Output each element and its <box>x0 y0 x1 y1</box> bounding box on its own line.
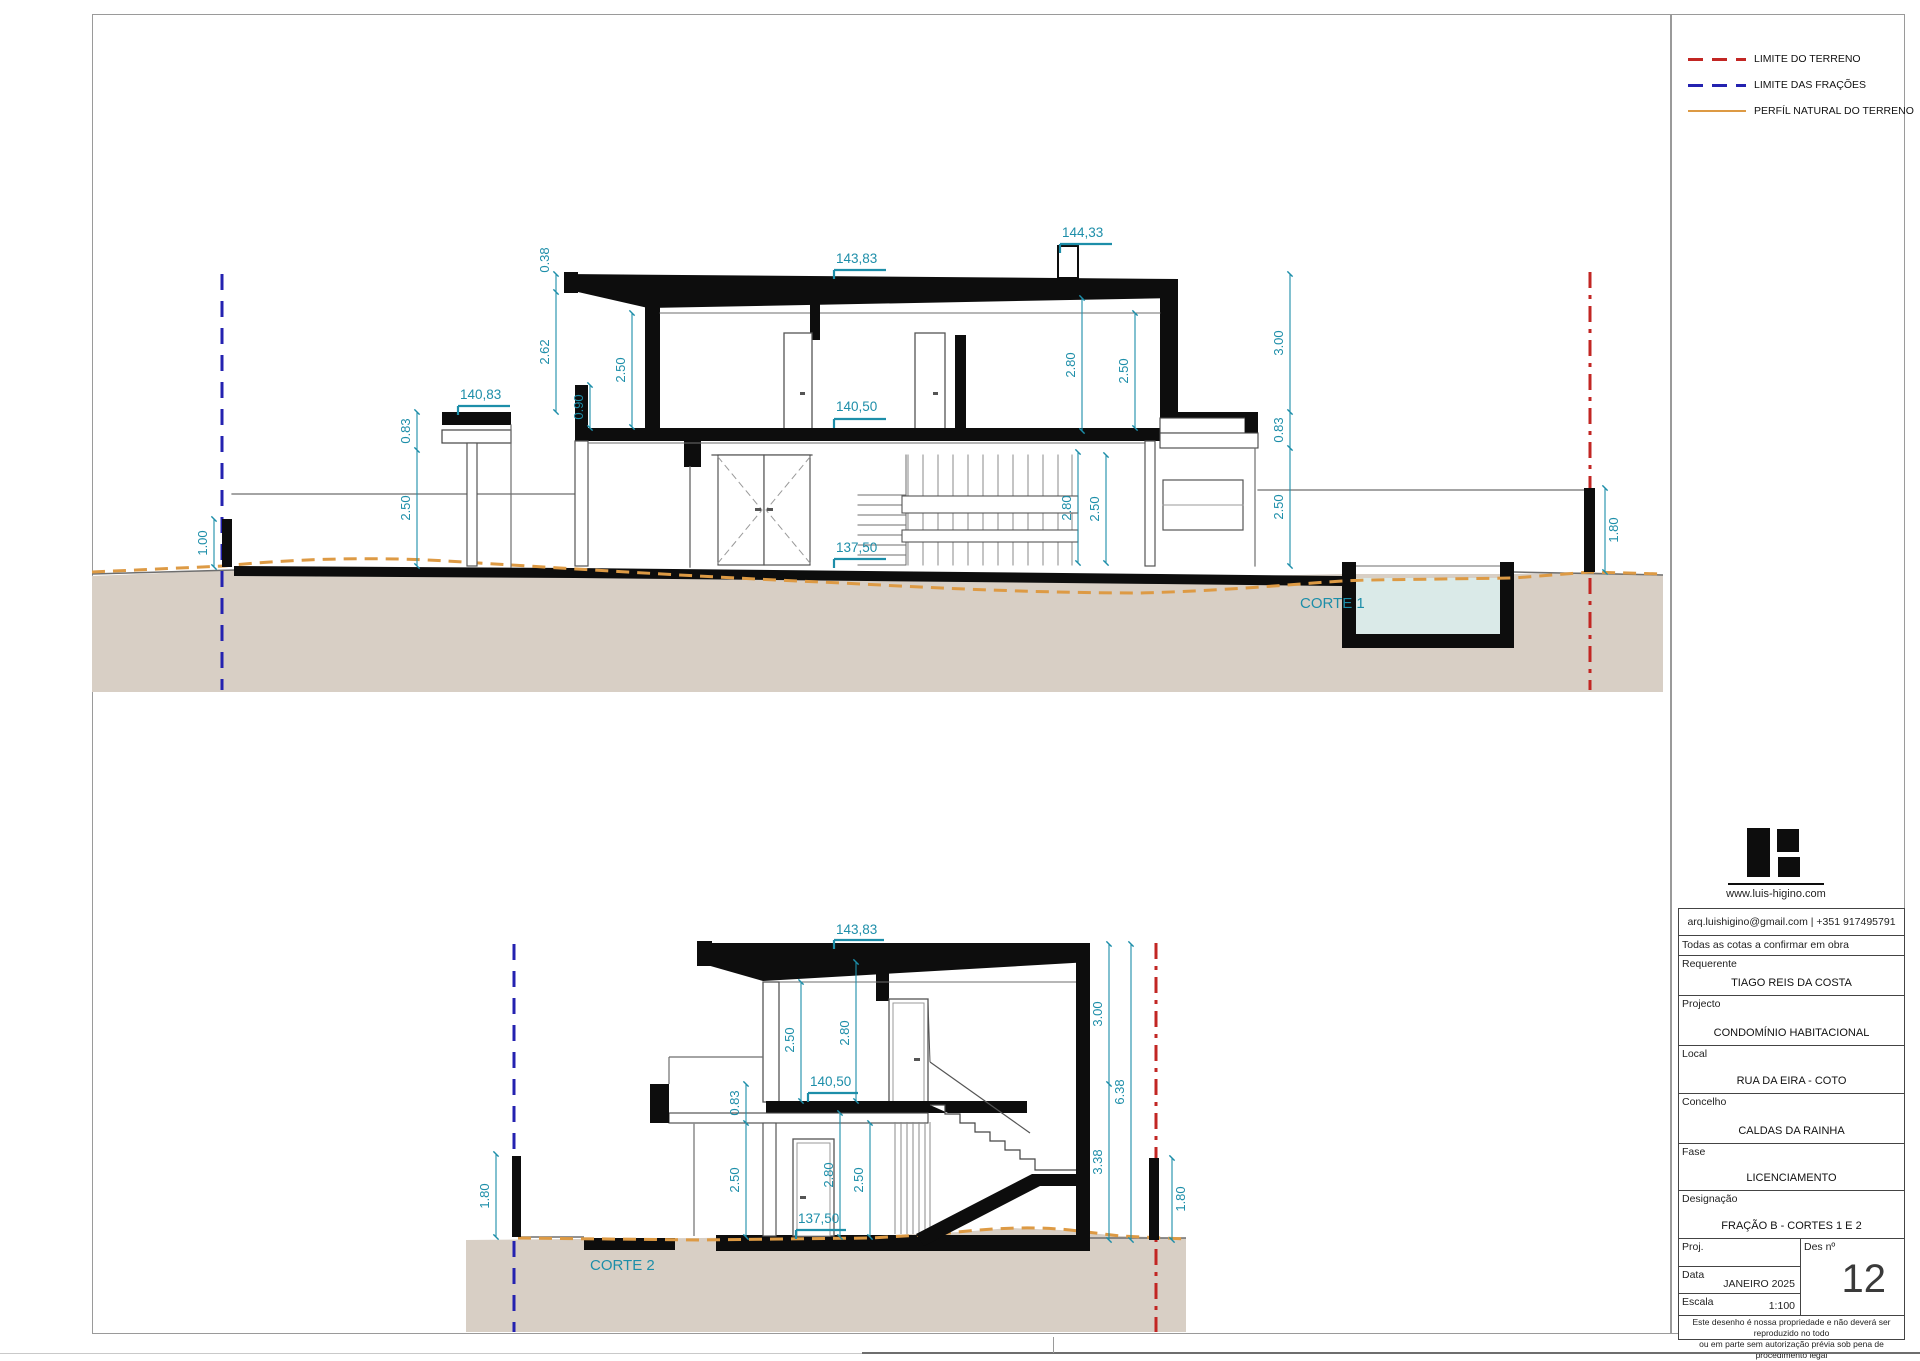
gf-right-wall <box>1145 441 1155 566</box>
level-chimney: 144,33 <box>1062 225 1103 240</box>
field-value: TIAGO REIS DA COSTA <box>1679 977 1904 989</box>
title-block: arq.luishigino@gmail.com | +351 91749579… <box>1678 908 1905 1340</box>
dim-eave: 0.38 <box>537 247 552 272</box>
dim-gf-left: 2.50 <box>727 1167 742 1192</box>
field-label: Designação <box>1682 1193 1737 1205</box>
dim-gf-right: 2.50 <box>1271 494 1286 519</box>
field-value: CALDAS DA RAINHA <box>1679 1125 1904 1137</box>
legend-item-fraction-limit: LIMITE DAS FRAÇÕES <box>1688 72 1903 98</box>
field-projecto: Projecto CONDOMÍNIO HABITACIONAL <box>1679 995 1904 1045</box>
sheet-bottom-tick <box>1053 1337 1054 1353</box>
titleblock-divider <box>1670 14 1672 1334</box>
dim-pergola-h: 2.50 <box>398 495 413 520</box>
right-wall <box>1076 943 1090 1244</box>
proj-label: Proj. <box>1682 1241 1704 1253</box>
cell-proj: Proj. <box>1679 1239 1800 1266</box>
cell-des-numero: Des nº 12 <box>1801 1239 1904 1315</box>
dim-up-int: 2.50 <box>782 1027 797 1052</box>
terrain-profile-line-sample <box>1688 110 1746 113</box>
field-fase: Fase LICENCIAMENTO <box>1679 1143 1904 1190</box>
gf-left-wall <box>763 1123 776 1236</box>
escala-label: Escala <box>1682 1296 1714 1308</box>
dim-left-interior: 2.50 <box>613 357 628 382</box>
field-label: Concelho <box>1682 1096 1726 1108</box>
field-label: Local <box>1682 1048 1707 1060</box>
field-value: RUA DA EIRA - COTO <box>1679 1075 1904 1087</box>
gf-glass-doors <box>712 455 812 565</box>
cell-escala: Escala 1:100 <box>1679 1293 1800 1315</box>
dim-up-h: 2.80 <box>837 1020 852 1045</box>
legend: LIMITE DO TERRENO LIMITE DAS FRAÇÕES PER… <box>1688 46 1903 124</box>
cell-data: Data JANEIRO 2025 <box>1679 1266 1800 1293</box>
right-boundary-wall <box>1149 1158 1159 1240</box>
dim-parapet: 0.90 <box>571 394 586 419</box>
contact-row: arq.luishigino@gmail.com | +351 91749579… <box>1679 909 1904 935</box>
logo-block <box>1747 828 1770 877</box>
floor-slab <box>575 428 1160 441</box>
level-roof: 143,83 <box>836 251 877 266</box>
data-value: JANEIRO 2025 <box>1723 1278 1795 1290</box>
dim-right-total: 3.00 <box>1271 330 1286 355</box>
pergola <box>442 412 511 567</box>
dim-left-total: 2.62 <box>537 339 552 364</box>
pergola-column <box>467 443 477 566</box>
corte1-drawing: 0.38 2.62 2.50 0.90 0.83 2.50 1.00 2.80 … <box>90 180 1670 700</box>
roof-slab <box>566 274 1178 308</box>
upper-left-wall <box>763 982 779 1102</box>
des-label: Des nº <box>1804 1241 1835 1253</box>
footer-line: Este desenho é nossa propriedade e não d… <box>1679 1317 1904 1339</box>
dim-upper-right: 3.00 <box>1090 1001 1105 1026</box>
field-value: FRAÇÃO B - CORTES 1 E 2 <box>1679 1220 1904 1232</box>
gf-left-wall <box>575 441 588 566</box>
drawing-number: 12 <box>1842 1257 1887 1302</box>
fraction-limit-line-sample <box>1688 84 1746 87</box>
upper-door <box>784 333 812 430</box>
left-boundary-wall <box>512 1156 521 1237</box>
field-concelho: Concelho CALDAS DA RAINHA <box>1679 1093 1904 1143</box>
pool-water <box>1356 578 1500 634</box>
field-label: Fase <box>1682 1146 1705 1158</box>
terrain-limit-line-sample <box>1688 58 1746 61</box>
sheet-bottom-edge <box>862 1352 1920 1354</box>
field-label: Projecto <box>1682 998 1721 1010</box>
legend-label: PERFÍL NATURAL DO TERRENO <box>1754 105 1914 117</box>
level-pergola: 140,83 <box>460 387 501 402</box>
staircase <box>916 1002 1076 1246</box>
architect-website: www.luis-higino.com <box>1708 888 1844 900</box>
dim-gf-int: 2.50 <box>851 1167 866 1192</box>
dim-total-right: 6.38 <box>1112 1079 1127 1104</box>
dim-slab-thk: 0.83 <box>727 1090 742 1115</box>
level-floor0: 137,50 <box>798 1211 839 1226</box>
logo-underline <box>1728 883 1824 885</box>
field-local: Local RUA DA EIRA - COTO <box>1679 1045 1904 1093</box>
gf-window <box>1163 480 1243 530</box>
sheet-bottom-edge <box>0 1353 862 1354</box>
dim-pergola-thk: 0.83 <box>398 418 413 443</box>
copyright-footer: Este desenho é nossa propriedade e não d… <box>1679 1315 1904 1339</box>
escala-value: 1:100 <box>1769 1300 1795 1312</box>
field-designacao: Designação FRAÇÃO B - CORTES 1 E 2 <box>1679 1190 1904 1238</box>
stair-balustrade <box>895 1122 930 1234</box>
legend-item-terrain-profile: PERFÍL NATURAL DO TERRENO <box>1688 98 1903 124</box>
corte1-building <box>222 246 1595 572</box>
roof-slab <box>700 943 1090 981</box>
legend-item-terrain-limit: LIMITE DO TERRENO <box>1688 46 1903 72</box>
logo-block <box>1777 829 1799 852</box>
stair-balustrade <box>902 455 1078 565</box>
dim-int-h2: 2.50 <box>1116 358 1131 383</box>
upper-door <box>889 999 928 1102</box>
field-value: LICENCIAMENTO <box>1679 1172 1904 1184</box>
logo-block <box>1778 857 1800 877</box>
dim-bound-right: 1.80 <box>1173 1186 1188 1211</box>
meta-grid: Proj. Data JANEIRO 2025 Escala 1:100 Des… <box>1679 1238 1904 1315</box>
dim-terrace-thk: 0.83 <box>1271 417 1286 442</box>
corte2-label: CORTE 2 <box>590 1257 655 1274</box>
corte2-drawing: 2.50 2.80 0.83 2.50 2.80 2.50 3.00 6.38 … <box>380 900 1240 1340</box>
dim-int-h1: 2.80 <box>1063 352 1078 377</box>
dim-gf-h2: 2.50 <box>1087 496 1102 521</box>
level-floor1: 140,50 <box>836 399 877 414</box>
level-floor0: 137,50 <box>836 540 877 555</box>
dim-low-wall: 1.00 <box>195 530 210 555</box>
dim-lower-right: 3.38 <box>1090 1149 1105 1174</box>
legend-label: LIMITE DO TERRENO <box>1754 53 1861 65</box>
left-low-wall <box>222 519 232 567</box>
legend-label: LIMITE DAS FRAÇÕES <box>1754 79 1866 91</box>
level-roof: 143,83 <box>836 922 877 937</box>
field-requerente: Requerente TIAGO REIS DA COSTA <box>1679 955 1904 995</box>
dim-bound-left: 1.80 <box>477 1183 492 1208</box>
note-row: Todas as cotas a confirmar em obra <box>1679 935 1904 955</box>
dim-gf-h1: 2.80 <box>1059 495 1074 520</box>
level-floor1: 140,50 <box>810 1074 851 1089</box>
upper-door <box>915 333 945 430</box>
dim-gf-h: 2.80 <box>821 1162 836 1187</box>
drawing-sheet: LIMITE DO TERRENO LIMITE DAS FRAÇÕES PER… <box>0 0 1920 1358</box>
right-boundary-wall <box>1584 488 1595 572</box>
corte1-label: CORTE 1 <box>1300 595 1365 612</box>
field-value: CONDOMÍNIO HABITACIONAL <box>1679 1027 1904 1039</box>
dim-bound-wall: 1.80 <box>1606 517 1621 542</box>
upper-left-wall <box>645 306 660 428</box>
data-label: Data <box>1682 1269 1704 1281</box>
field-label: Requerente <box>1682 958 1737 970</box>
